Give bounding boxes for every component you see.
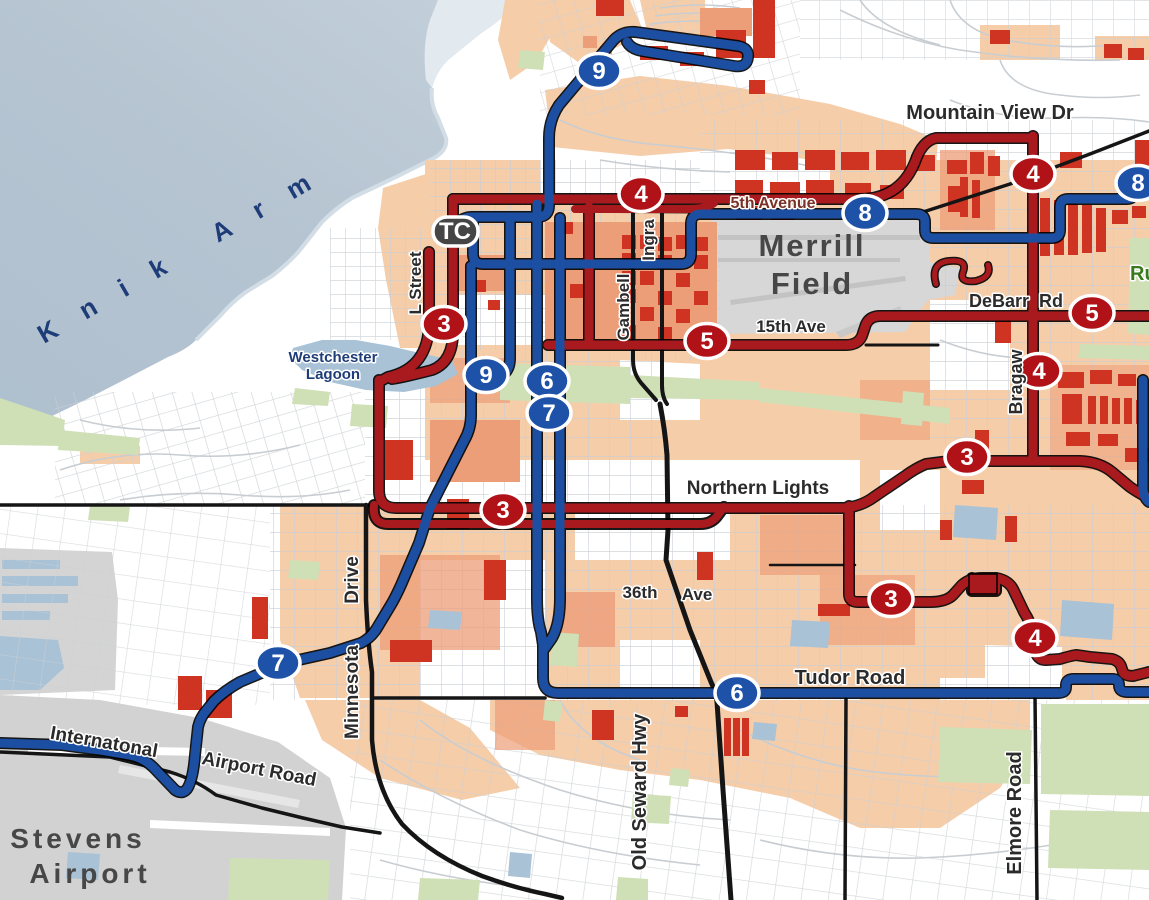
svg-text:Tudor Road: Tudor Road: [795, 667, 906, 689]
svg-text:6: 6: [730, 680, 743, 707]
svg-text:Lagoon: Lagoon: [306, 366, 360, 383]
svg-text:Minnesota: Minnesota: [342, 645, 363, 739]
svg-text:Merrill: Merrill: [758, 228, 865, 263]
svg-text:Airport: Airport: [29, 858, 150, 889]
svg-text:5: 5: [1085, 300, 1098, 327]
svg-text:4: 4: [1028, 625, 1042, 652]
svg-text:3: 3: [960, 444, 973, 471]
svg-text:8: 8: [1131, 170, 1144, 197]
svg-text:Westchester: Westchester: [289, 349, 378, 366]
svg-text:Bragaw: Bragaw: [1006, 348, 1026, 414]
svg-text:8: 8: [858, 200, 871, 227]
svg-text:Ave: Ave: [682, 585, 713, 604]
svg-text:Mountain View Dr: Mountain View Dr: [906, 102, 1074, 124]
svg-text:36th: 36th: [623, 583, 658, 602]
svg-text:15th Ave: 15th Ave: [756, 317, 826, 336]
svg-text:L Street: L Street: [406, 251, 425, 314]
svg-text:3: 3: [437, 311, 450, 338]
svg-text:3: 3: [496, 497, 509, 524]
svg-text:7: 7: [271, 650, 284, 677]
svg-text:5th Avenue: 5th Avenue: [730, 195, 815, 212]
svg-text:Old Seward Hwy: Old Seward Hwy: [629, 713, 651, 871]
svg-text:3: 3: [884, 586, 897, 613]
svg-text:6: 6: [540, 368, 553, 395]
svg-text:Field: Field: [771, 266, 853, 301]
svg-text:TC: TC: [439, 218, 471, 245]
svg-text:5: 5: [700, 328, 713, 355]
svg-text:Gambell: Gambell: [614, 273, 633, 340]
svg-text:Ingra: Ingra: [639, 219, 658, 261]
svg-text:4: 4: [1026, 161, 1040, 188]
svg-text:Ru: Ru: [1130, 263, 1149, 285]
svg-text:Elmore Road: Elmore Road: [1004, 751, 1026, 874]
svg-text:Drive: Drive: [342, 556, 363, 604]
svg-text:Stevens: Stevens: [10, 823, 145, 854]
svg-text:9: 9: [592, 58, 605, 85]
svg-text:4: 4: [634, 181, 648, 208]
svg-text:9: 9: [479, 362, 492, 389]
svg-text:4: 4: [1032, 358, 1046, 385]
svg-text:DeBarr Rd: DeBarr Rd: [969, 291, 1063, 311]
svg-text:Northern Lights: Northern Lights: [687, 478, 830, 499]
svg-text:7: 7: [542, 400, 555, 427]
